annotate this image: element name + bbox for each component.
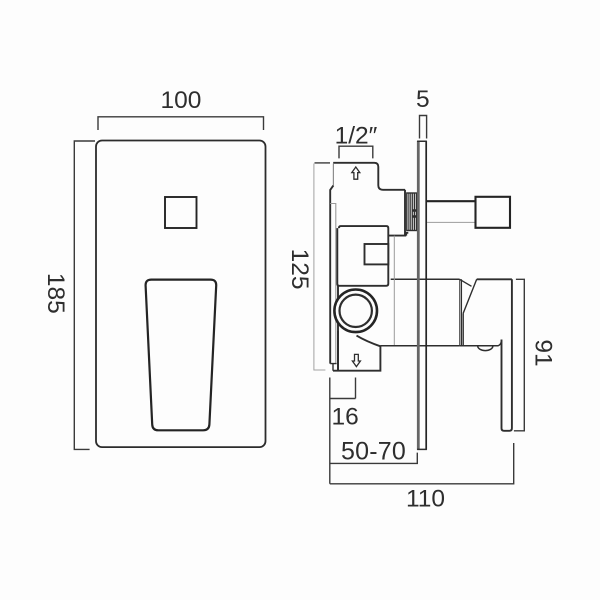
svg-text:125: 125 — [286, 249, 313, 290]
svg-text:1/2″: 1/2″ — [335, 122, 378, 149]
svg-text:100: 100 — [161, 87, 202, 114]
svg-text:91: 91 — [530, 339, 557, 366]
svg-text:50-70: 50-70 — [341, 438, 406, 466]
svg-text:5: 5 — [416, 86, 430, 113]
svg-text:185: 185 — [42, 273, 69, 314]
svg-text:110: 110 — [406, 486, 445, 513]
svg-text:16: 16 — [332, 404, 359, 431]
